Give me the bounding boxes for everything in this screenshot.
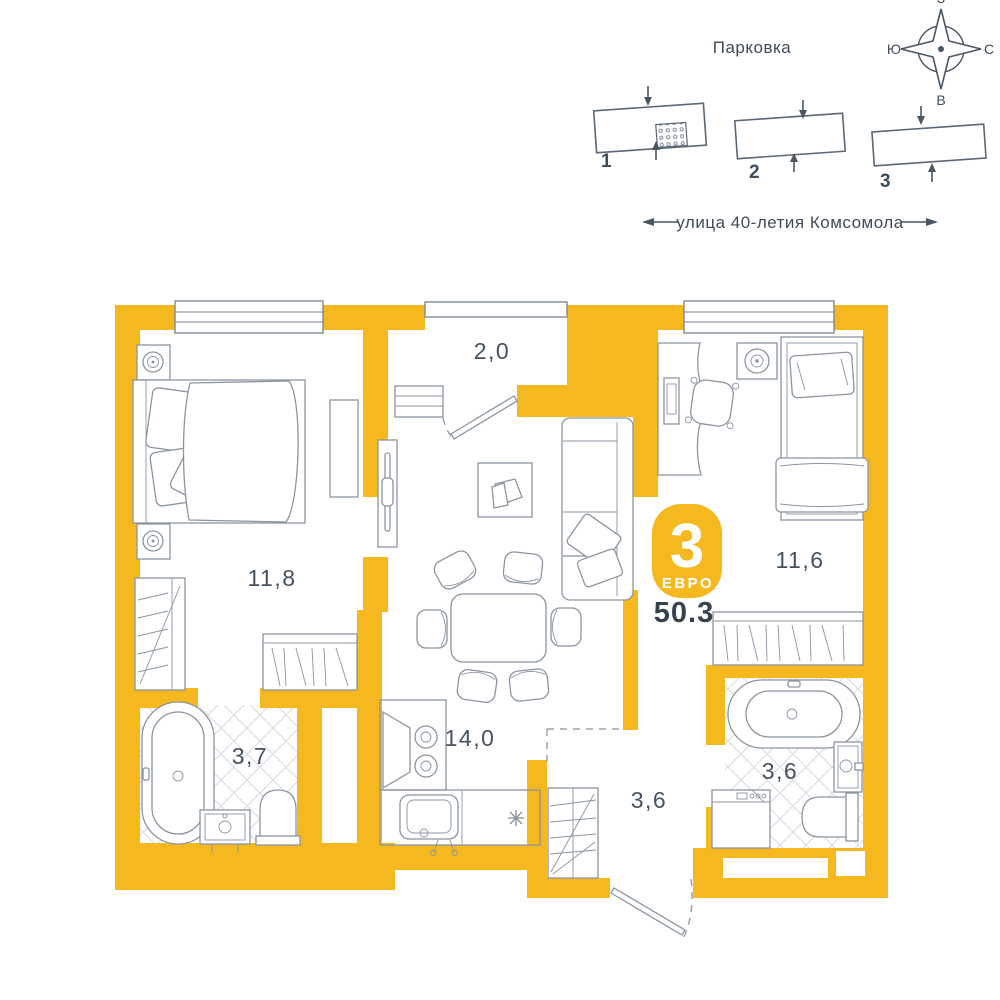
building-number: 3 bbox=[880, 171, 891, 192]
corner-sofa bbox=[562, 418, 633, 600]
bathroom-sink bbox=[834, 742, 863, 792]
washing-machine bbox=[712, 790, 770, 848]
dresser bbox=[330, 400, 358, 497]
window-bedroom-right bbox=[684, 301, 834, 333]
bathtub bbox=[728, 680, 860, 748]
nightstand-with-lamp bbox=[137, 524, 170, 559]
room-area-label: 3,7 bbox=[232, 743, 268, 769]
room-area-label: 2,0 bbox=[474, 338, 510, 364]
building-3: 3 bbox=[872, 106, 986, 192]
room-area-label: 3,6 bbox=[631, 787, 667, 813]
coffee-table bbox=[478, 463, 532, 517]
room-area-label: 11,6 bbox=[775, 547, 824, 573]
wardrobe bbox=[135, 578, 185, 690]
interior-door bbox=[443, 396, 517, 439]
compass-west: З bbox=[937, 0, 945, 6]
entry-hall: 2,0 bbox=[395, 338, 517, 439]
compass-east: В bbox=[936, 92, 945, 108]
double-bed bbox=[133, 380, 305, 523]
apartment-plan: 11,8 2,0 bbox=[115, 301, 888, 937]
duct-niche bbox=[723, 858, 828, 878]
window-bedroom-left bbox=[175, 301, 323, 333]
entrance-arrow-icon bbox=[928, 163, 936, 172]
floor-plan-page: Парковка З В Ю С 1 bbox=[0, 0, 1000, 1000]
toilet bbox=[802, 793, 858, 841]
building-number: 1 bbox=[601, 151, 612, 172]
type-label: ЕВРО bbox=[662, 575, 714, 592]
compass-north: С bbox=[984, 41, 994, 57]
room-area-label: 3,6 bbox=[762, 758, 798, 784]
nightstand-with-lamp bbox=[737, 343, 777, 379]
rooms-count: 3 bbox=[670, 512, 704, 581]
window-entry-hall bbox=[425, 302, 567, 330]
wardrobe bbox=[548, 788, 598, 878]
apartment-type-badge: 3 ЕВРО bbox=[652, 504, 722, 598]
site-plan: Парковка З В Ю С 1 bbox=[594, 0, 994, 232]
shoe-cabinet bbox=[395, 386, 443, 417]
entrance-arrow-icon bbox=[917, 116, 925, 125]
windows bbox=[175, 301, 834, 333]
entrance-arrow-icon bbox=[644, 97, 652, 106]
wardrobe bbox=[263, 634, 357, 690]
wardrobe bbox=[713, 612, 863, 665]
cooktop-hood-icon bbox=[383, 712, 410, 788]
current-building-marker bbox=[656, 122, 688, 147]
room-area-label: 14,0 bbox=[445, 725, 496, 751]
street-arrow-left-icon bbox=[642, 218, 654, 226]
single-bed bbox=[776, 337, 868, 520]
building-number: 2 bbox=[749, 162, 760, 183]
compass-rose-icon: З В Ю С bbox=[887, 0, 994, 108]
building-1: 1 bbox=[594, 86, 707, 172]
street-arrow-right-icon bbox=[926, 218, 938, 226]
entrance-door bbox=[611, 879, 692, 937]
hallway: 3,6 bbox=[547, 729, 692, 937]
dining-table bbox=[451, 594, 546, 662]
building-2: 2 bbox=[735, 100, 845, 183]
floor-plan-canvas: Парковка З В Ю С 1 bbox=[0, 0, 1000, 1000]
toilet bbox=[256, 790, 300, 845]
compass-south: Ю bbox=[887, 41, 901, 57]
parking-label: Парковка bbox=[713, 38, 792, 57]
street: улица 40-летия Комсомола bbox=[642, 213, 938, 232]
total-area-label: 50.3 bbox=[654, 597, 714, 629]
room-area-label: 11,8 bbox=[247, 565, 296, 591]
tv-console bbox=[378, 440, 397, 547]
duct-niche bbox=[836, 851, 865, 876]
stove-symbol-icon bbox=[508, 810, 524, 826]
nightstand-with-lamp bbox=[137, 345, 170, 380]
street-label: улица 40-летия Комсомола bbox=[676, 213, 903, 232]
